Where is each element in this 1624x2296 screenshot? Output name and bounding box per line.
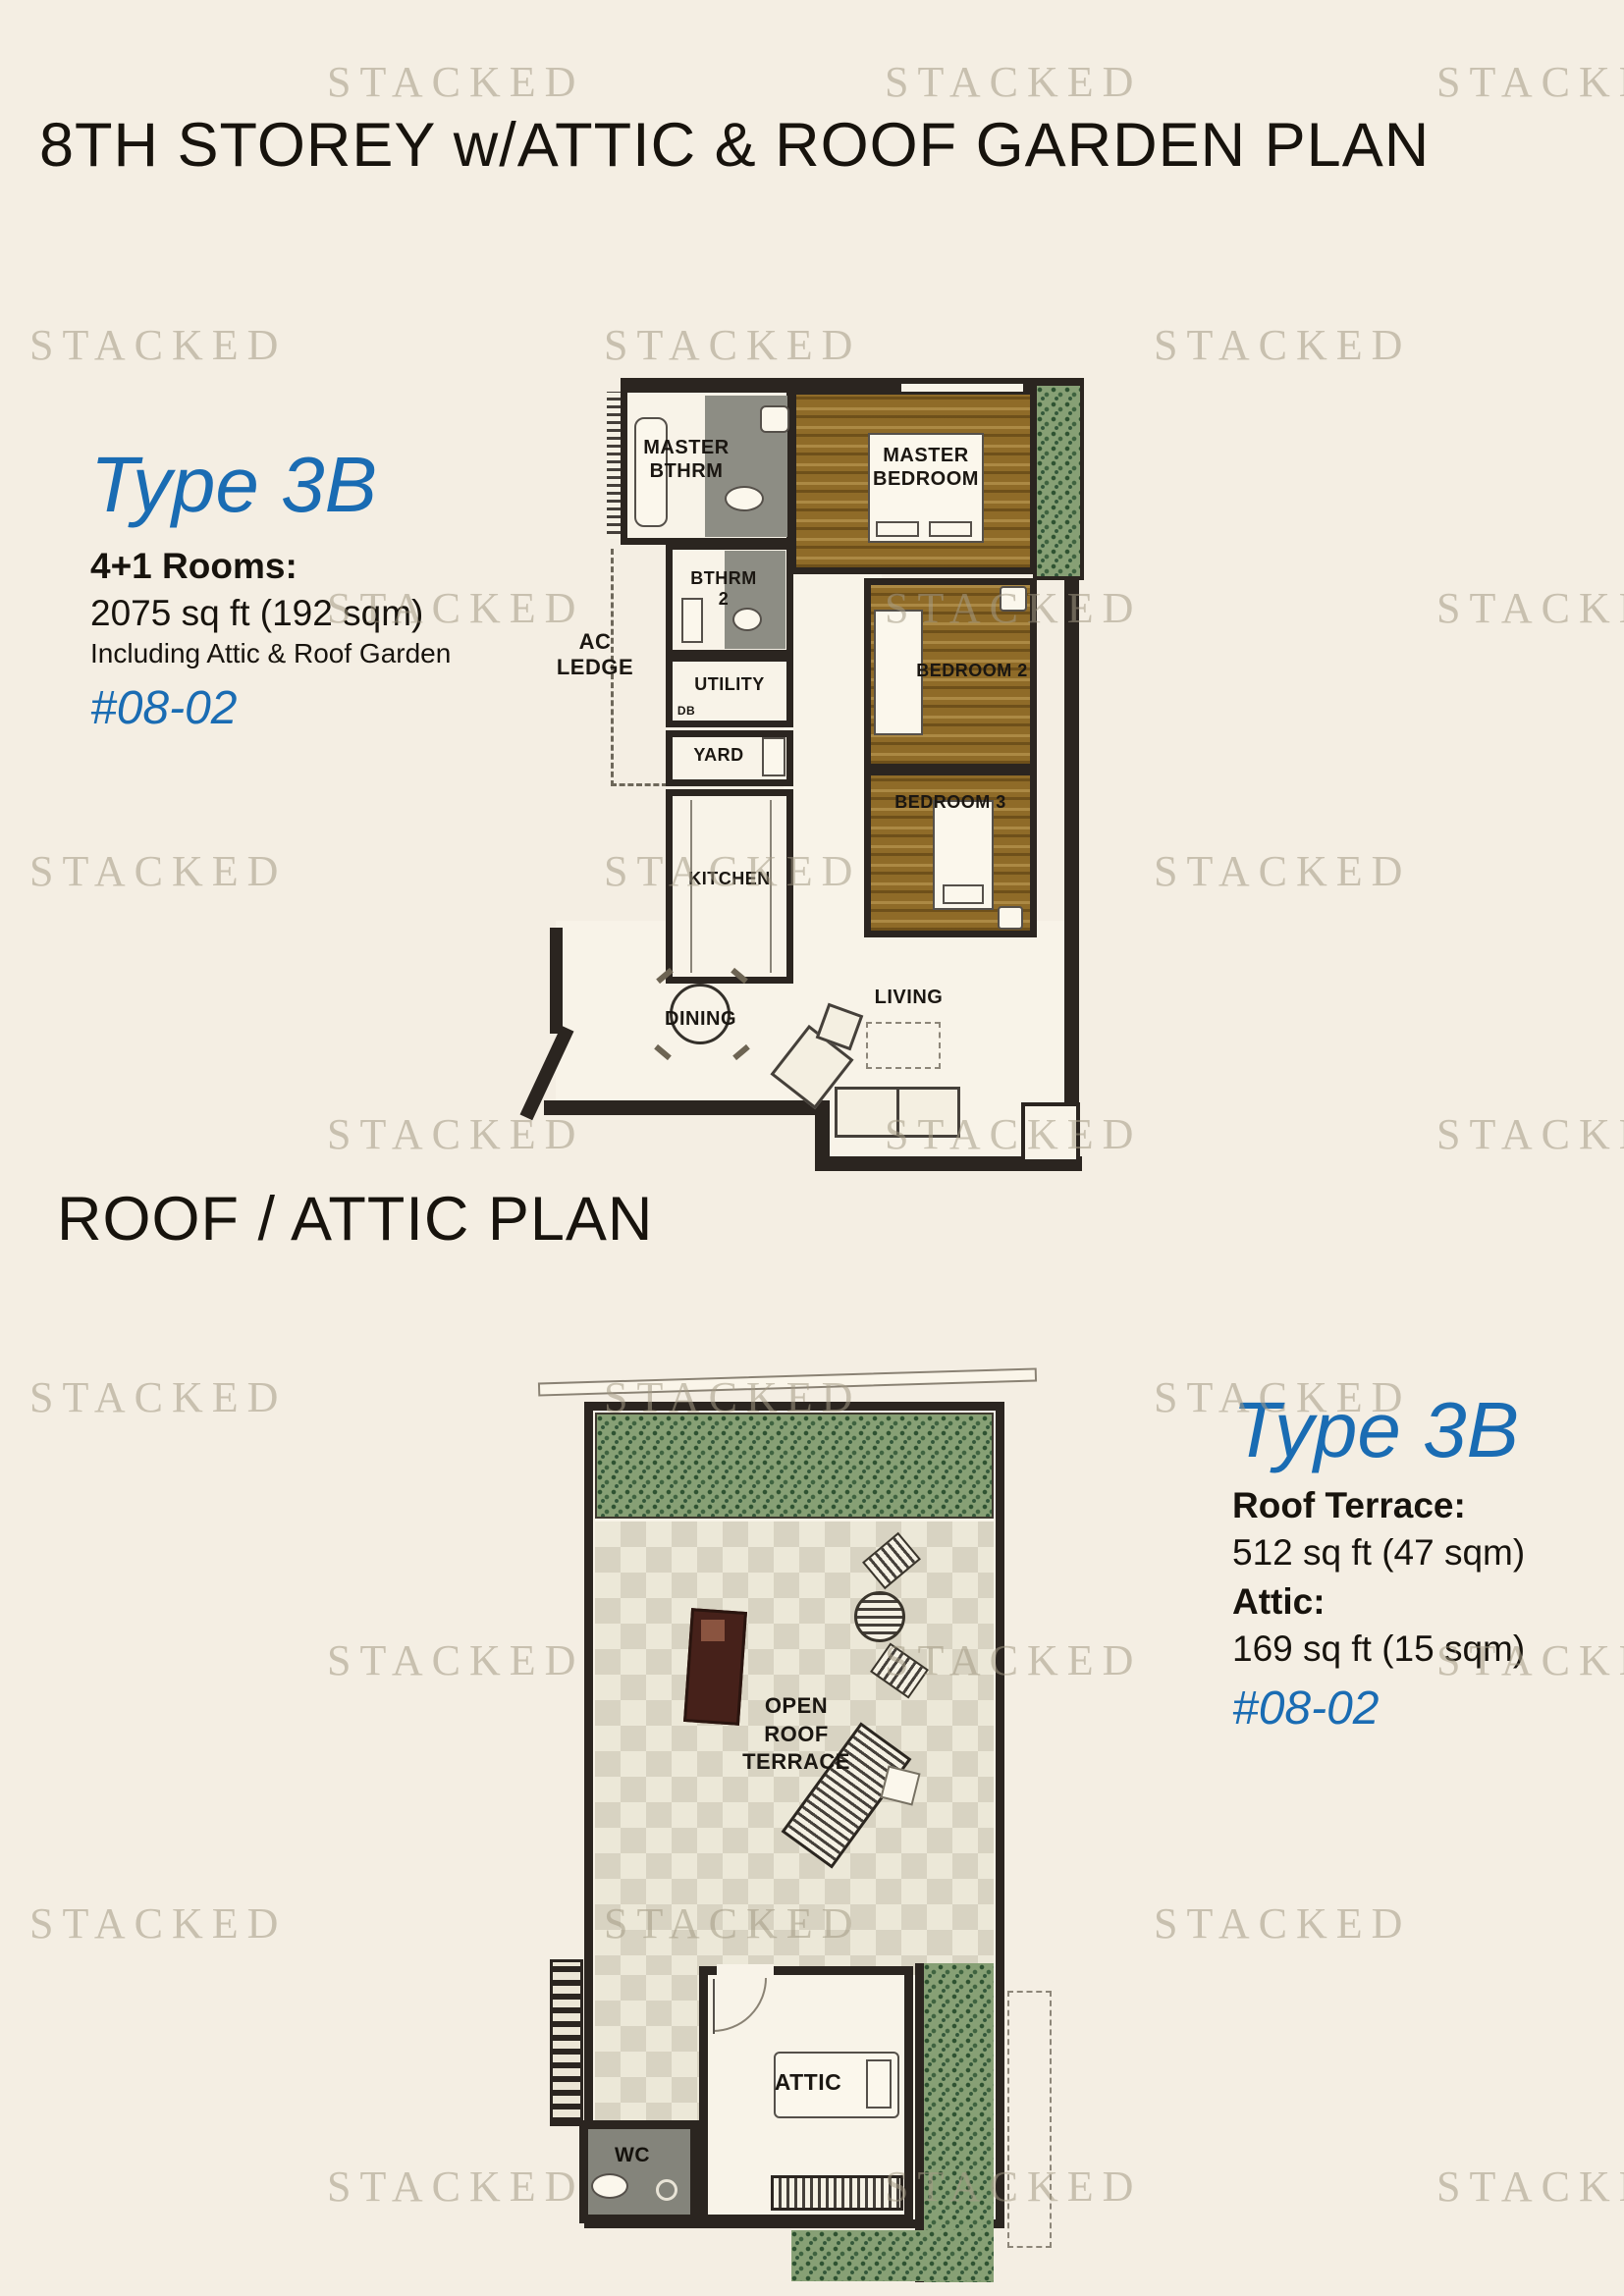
db-label: DB: [672, 704, 701, 718]
watermark-text: STACKED: [1154, 320, 1411, 370]
roof-terrace-label: Roof Terrace:: [1232, 1485, 1525, 1526]
unit-type-label: Type 3B: [1232, 1389, 1525, 1471]
balcony-nook: [1021, 1102, 1080, 1163]
watermark-text: STACKED: [885, 57, 1142, 107]
room-wc: [579, 2120, 699, 2223]
roof-planter-top: [595, 1413, 994, 1519]
roof-planter-bottom: [791, 2230, 994, 2281]
window-strip: [899, 382, 1025, 394]
toilet-icon: [591, 2173, 628, 2199]
room-label-dining: DINING: [644, 1008, 757, 1032]
roof-attic-floor-plan: OPEN ROOF TERRACE ATTIC WC: [538, 1362, 1073, 2295]
toilet-icon: [732, 608, 762, 631]
watermark-text: STACKED: [29, 320, 287, 370]
page-title: 8TH STOREY w/ATTIC & ROOF GARDEN PLAN: [39, 110, 1430, 181]
room-label-attic: ATTIC: [759, 2069, 857, 2096]
wall-step: [815, 1100, 830, 1171]
room-label-utility: UTILITY: [676, 674, 784, 695]
floor-trap-icon: [656, 2179, 677, 2201]
dashed-boundary: [1007, 1991, 1052, 2248]
unit-type-label: Type 3B: [90, 444, 451, 526]
roof-attic-plan-title: ROOF / ATTIC PLAN: [57, 1184, 653, 1255]
room-label-living: LIVING: [852, 987, 965, 1010]
room-label-bathroom-2: BTHRM 2: [681, 568, 766, 610]
roof-terrace-area: 512 sq ft (47 sqm): [1232, 1532, 1525, 1574]
pillow-icon: [943, 884, 984, 904]
room-label-ac-ledge: AC LEDGE: [544, 629, 646, 680]
watermark-text: STACKED: [1154, 846, 1411, 896]
watermark-text: STACKED: [1436, 2162, 1624, 2212]
sofa-icon: [835, 1087, 960, 1138]
door-leaf: [713, 1979, 715, 2034]
unit-info-main: Type 3B 4+1 Rooms: 2075 sq ft (192 sqm) …: [90, 444, 451, 735]
patio-table-icon: [854, 1591, 905, 1642]
stairs-icon: [550, 1959, 583, 2126]
room-label-master-bedroom: MASTER BEDROOM: [868, 445, 984, 491]
roof-terrace-floor-lower: [595, 1975, 699, 2126]
wall-living-right: [1064, 580, 1079, 1169]
watermark-text: STACKED: [327, 57, 584, 107]
watermark-text: STACKED: [604, 320, 861, 370]
pillow-icon: [929, 521, 972, 537]
wall-dining-left: [550, 928, 563, 1034]
watermark-text: STACKED: [1436, 583, 1624, 633]
toilet-icon: [725, 486, 764, 511]
hatch-edge: [607, 392, 621, 539]
room-label-kitchen: KITCHEN: [674, 869, 785, 889]
watermark-text: STACKED: [1154, 1898, 1411, 1949]
room-label-yard: YARD: [674, 745, 764, 766]
wall-bottom-left: [544, 1100, 827, 1115]
planter-strip: [1033, 382, 1084, 580]
attic-label: Attic:: [1232, 1581, 1525, 1623]
roof-edge-trim: [538, 1367, 1037, 1396]
attic-door-gap: [717, 1964, 774, 1976]
watermark-text: STACKED: [29, 1372, 287, 1422]
ac-unit-icon: [998, 906, 1023, 930]
shower-icon: [760, 405, 789, 433]
unit-area-note: Including Attic & Roof Garden: [90, 638, 451, 669]
rooms-label: 4+1 Rooms:: [90, 546, 451, 587]
room-label-bedroom-3: BEDROOM 3: [884, 792, 1017, 813]
pillow-icon: [876, 521, 919, 537]
room-label-wc: WC: [603, 2144, 662, 2168]
watermark-text: STACKED: [1436, 57, 1624, 107]
room-label-open-roof-terrace: OPEN ROOF TERRACE: [703, 1692, 890, 1777]
unit-number: #08-02: [90, 681, 451, 735]
bbq-grill-lid-icon: [701, 1620, 725, 1641]
washer-icon: [762, 737, 785, 776]
watermark-text: STACKED: [29, 846, 287, 896]
room-label-bedroom-2: BEDROOM 2: [909, 661, 1035, 681]
pillow-icon: [866, 2059, 892, 2109]
ac-unit-icon: [1000, 586, 1027, 612]
unit-area: 2075 sq ft (192 sqm): [90, 593, 451, 634]
attic-window-strip: [771, 2175, 903, 2211]
attic-area: 169 sq ft (15 sqm): [1232, 1629, 1525, 1670]
unit-info-roof: Type 3B Roof Terrace: 512 sq ft (47 sqm)…: [1232, 1389, 1525, 1735]
main-floor-plan: MASTER BTHRM MASTER BEDROOM BTHRM 2 AC L…: [538, 376, 1127, 1176]
coffee-table-icon: [866, 1022, 941, 1069]
room-label-master-bathroom: MASTER BTHRM: [631, 437, 741, 483]
watermark-text: STACKED: [1436, 1109, 1624, 1159]
floor-plan-page: STACKEDSTACKEDSTACKEDSTACKEDSTACKEDSTACK…: [0, 0, 1624, 2296]
watermark-text: STACKED: [29, 1898, 287, 1949]
unit-number: #08-02: [1232, 1682, 1525, 1735]
